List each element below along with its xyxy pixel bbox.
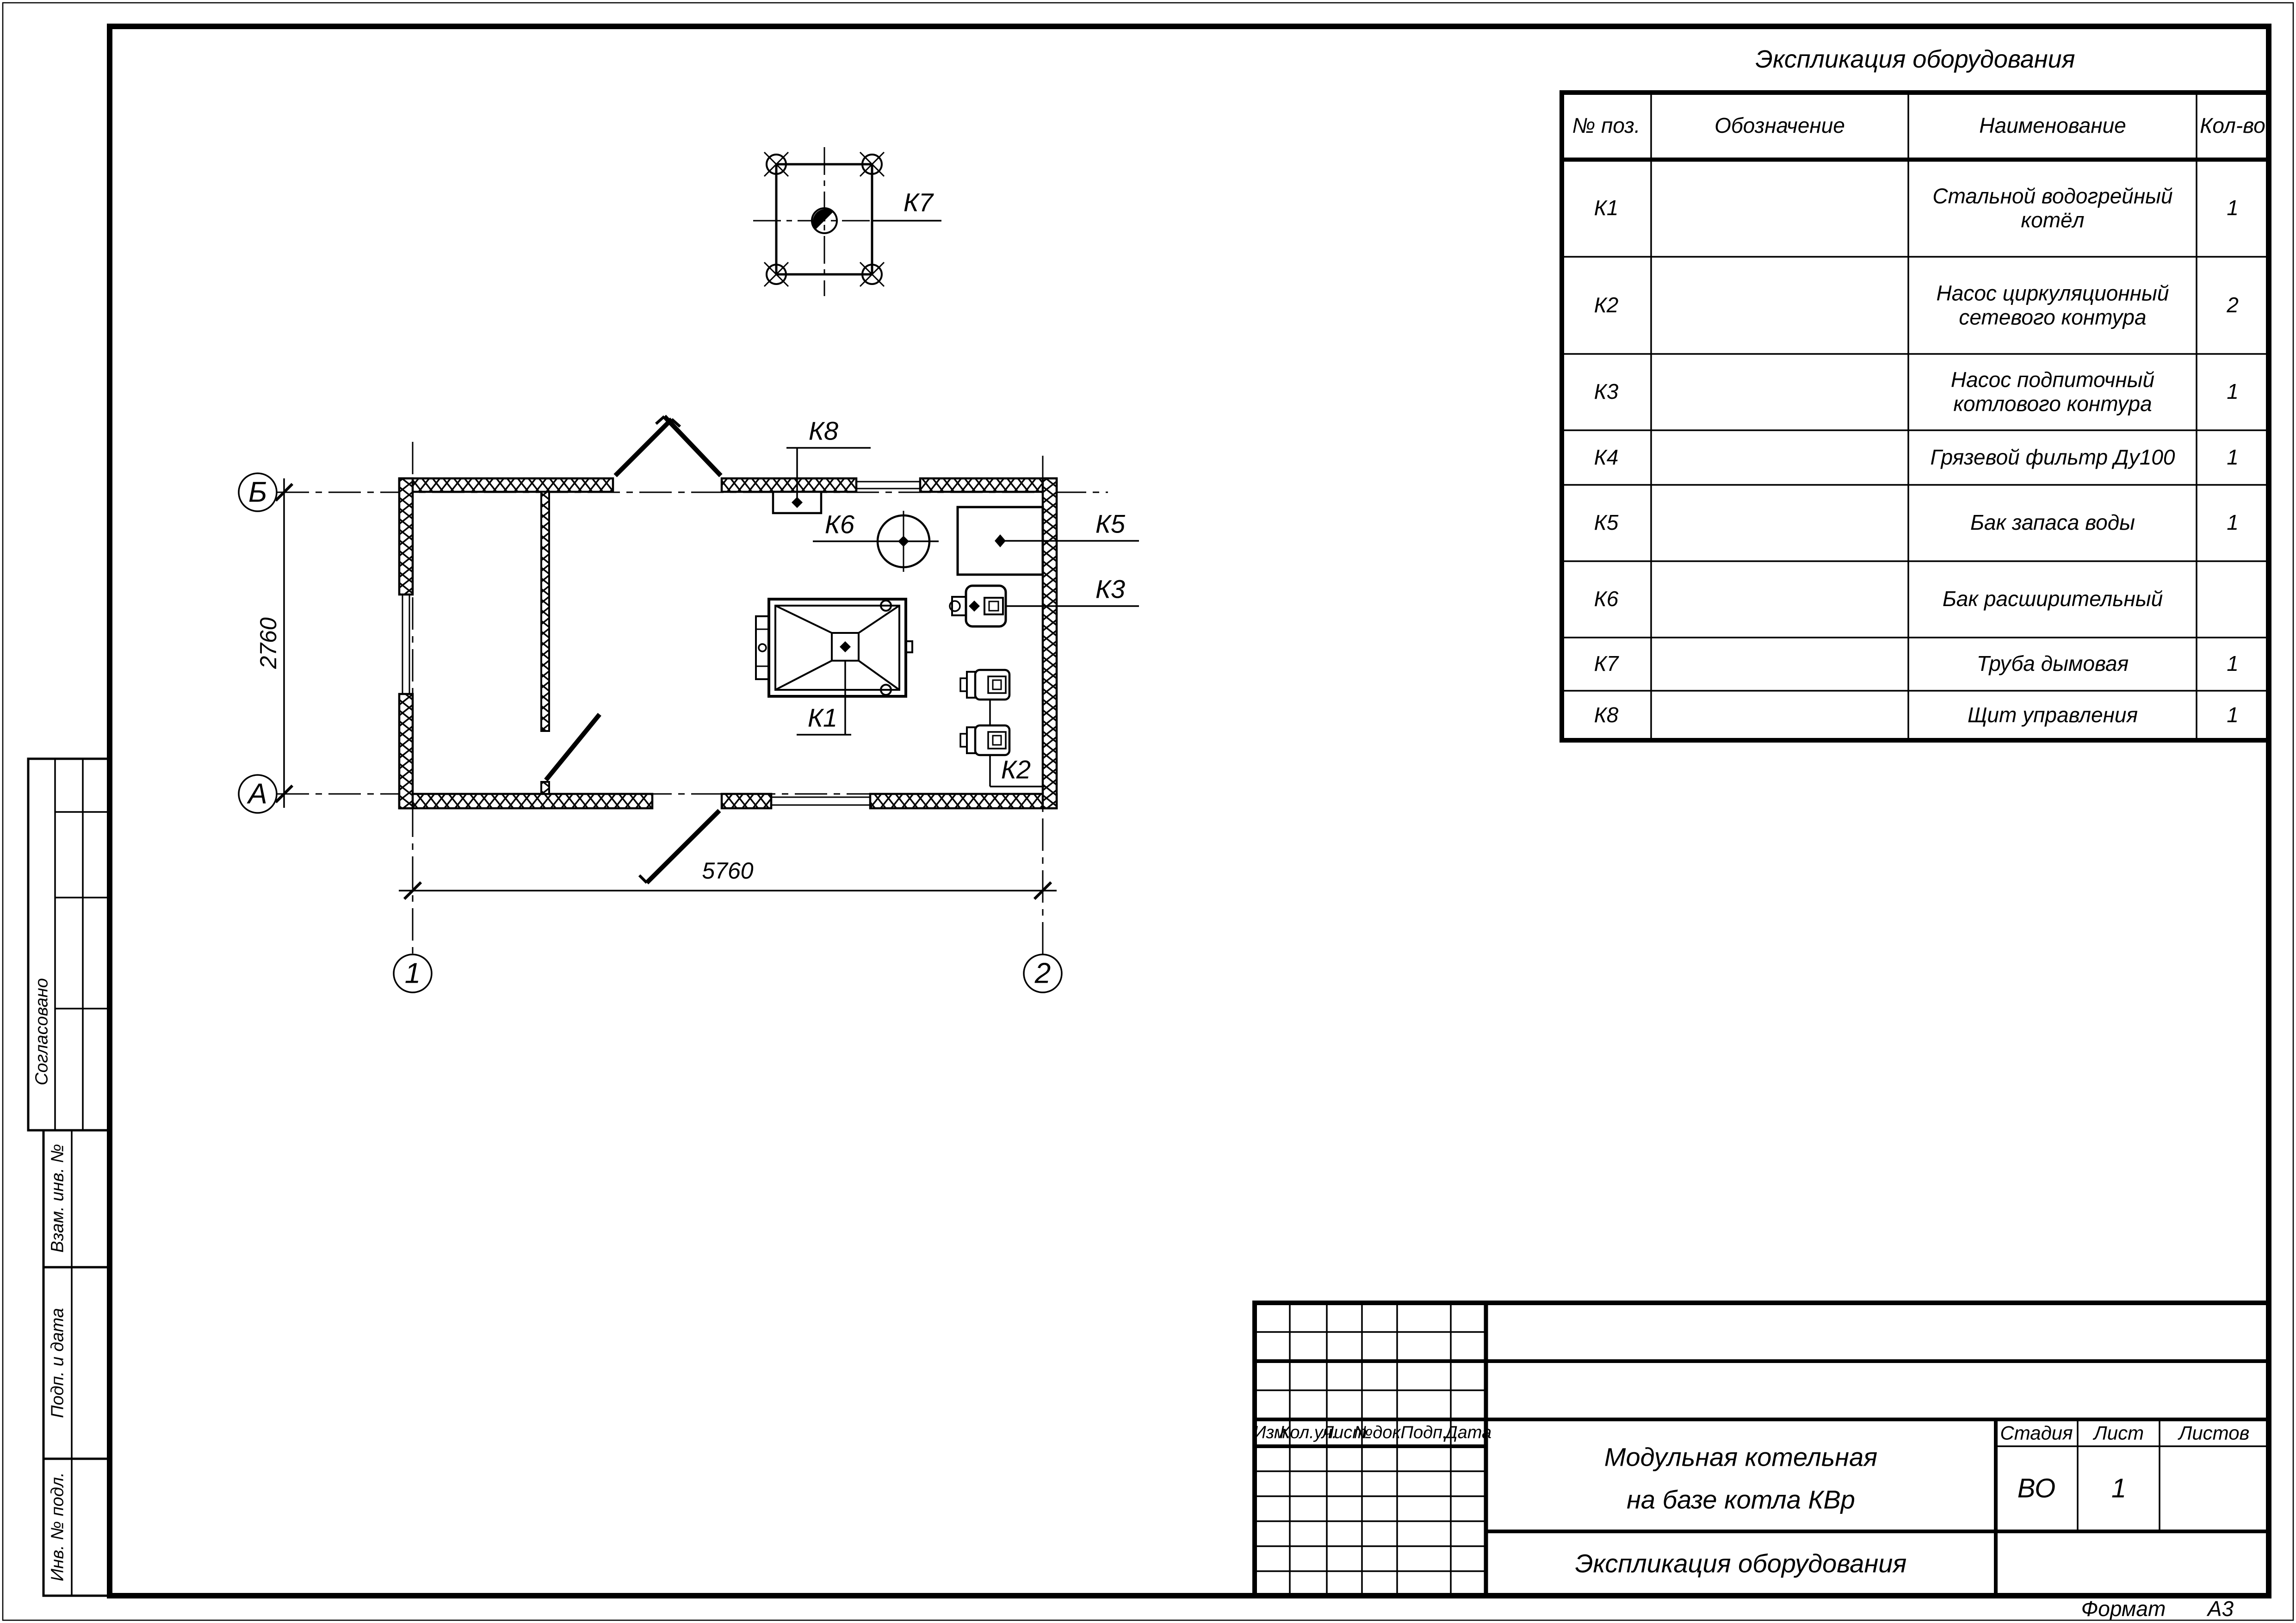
- tb-header-ndok: №док.: [1354, 1423, 1405, 1443]
- row-name: Насос подпиточный котлового контура: [1914, 368, 2191, 415]
- row-pos: К2: [1594, 293, 1619, 317]
- pump-k2-upper: [960, 670, 1009, 700]
- tb-project-name-line2: на базе котла КВр: [1627, 1486, 1855, 1515]
- tb-stage-value: ВО: [2018, 1474, 2056, 1504]
- pump-k2-lower: [960, 725, 1009, 755]
- tb-sheet-title: Экспликация оборудования: [1575, 1549, 1907, 1579]
- label-k7: К7: [904, 188, 933, 217]
- dimension-height: 2760: [255, 617, 281, 669]
- axis-label-2: 2: [1035, 957, 1051, 989]
- label-k2: К2: [1001, 756, 1031, 785]
- format-note-value: А3: [2208, 1597, 2234, 1621]
- format-note-label: Формат: [2081, 1597, 2166, 1621]
- axis-label-A: А: [248, 778, 267, 810]
- drawing-sheet: Экспликация оборудования № поз. Обозначе…: [0, 0, 2296, 1623]
- col-header-pos: № поз.: [1572, 114, 1640, 138]
- row-name: Грязевой фильтр Ду100: [1914, 446, 2191, 470]
- window-left: [402, 595, 409, 694]
- tb-header-podp: Подп.: [1400, 1423, 1447, 1443]
- row-pos: К5: [1594, 511, 1619, 535]
- side-strip-replacement: Взам. инв. №: [48, 1144, 68, 1252]
- label-k1: К1: [808, 704, 837, 733]
- axis-label-1: 1: [405, 957, 421, 989]
- col-header-designation: Обозначение: [1714, 114, 1845, 138]
- row-pos: К8: [1594, 703, 1619, 727]
- side-strip-grid: [28, 759, 110, 1596]
- wall-top-right: [920, 478, 1057, 492]
- partition-wall: [541, 492, 549, 731]
- row-qty: 1: [2227, 196, 2239, 220]
- tb-stage-label: Стадия: [2000, 1422, 2073, 1443]
- wall-bottom-mid: [722, 794, 771, 808]
- row-qty: 1: [2227, 380, 2239, 404]
- wall-left-bottom: [399, 694, 413, 808]
- side-strip-inv: Инв. № подл.: [48, 1472, 68, 1581]
- row-name: Насос циркуляционный сетевого контура: [1923, 281, 2182, 329]
- tb-sheets-label: Листов: [2179, 1422, 2250, 1443]
- axis-label-B: Б: [248, 476, 267, 508]
- tb-sheet-label: Лист: [2094, 1422, 2144, 1443]
- row-pos: К6: [1594, 587, 1619, 611]
- window-top: [856, 482, 920, 489]
- paper-border: [3, 3, 2293, 1620]
- label-k5: К5: [1095, 510, 1125, 539]
- row-qty: 1: [2227, 446, 2239, 470]
- row-qty: 1: [2227, 652, 2239, 676]
- row-name: Бак расширительный: [1914, 587, 2191, 611]
- row-pos: К4: [1594, 446, 1619, 470]
- row-name: Стальной водогрейный котёл: [1914, 184, 2191, 232]
- wall-bottom-left: [399, 794, 652, 808]
- chimney-detail: [753, 147, 941, 296]
- wall-top-mid: [722, 478, 856, 492]
- label-k3: К3: [1095, 575, 1125, 604]
- tb-header-data: Дата: [1445, 1423, 1491, 1443]
- wall-left-top: [399, 478, 413, 595]
- row-name: Щит управления: [1914, 703, 2191, 727]
- col-header-qty: Кол-во: [2200, 114, 2265, 138]
- window-bottom: [771, 797, 870, 805]
- col-header-name: Наименование: [1979, 114, 2126, 138]
- label-k8: К8: [809, 417, 838, 446]
- row-name: Труба дымовая: [1914, 652, 2191, 676]
- door-leaf-top-right: [664, 416, 721, 476]
- row-pos: К3: [1594, 380, 1619, 404]
- wall-top-left: [399, 478, 613, 492]
- drawing-linework: [0, 0, 2296, 1623]
- wall-right: [1043, 478, 1057, 808]
- dimension-width: 5760: [702, 858, 753, 884]
- door-leaf-partition: [546, 714, 600, 780]
- side-strip-sign-date: Подп. и дата: [48, 1308, 68, 1418]
- row-qty: 2: [2227, 293, 2239, 317]
- wall-bottom-right: [870, 794, 1057, 808]
- row-name: Бак запаса воды: [1914, 511, 2191, 535]
- side-strip-approved: Согласовано: [32, 978, 52, 1085]
- tb-sheet-number: 1: [2111, 1474, 2126, 1504]
- row-pos: К7: [1594, 652, 1619, 676]
- row-pos: К1: [1594, 196, 1619, 220]
- door-leaf-top-left: [615, 419, 672, 476]
- row-qty: 1: [2227, 511, 2239, 535]
- tb-project-name-line1: Модульная котельная: [1604, 1443, 1877, 1472]
- row-qty: 1: [2227, 703, 2239, 727]
- equipment-table-title: Экспликация оборудования: [1755, 45, 2075, 73]
- label-k6: К6: [825, 510, 854, 539]
- axes-and-dimensions: [239, 442, 1108, 992]
- partition-door-stub: [541, 782, 549, 794]
